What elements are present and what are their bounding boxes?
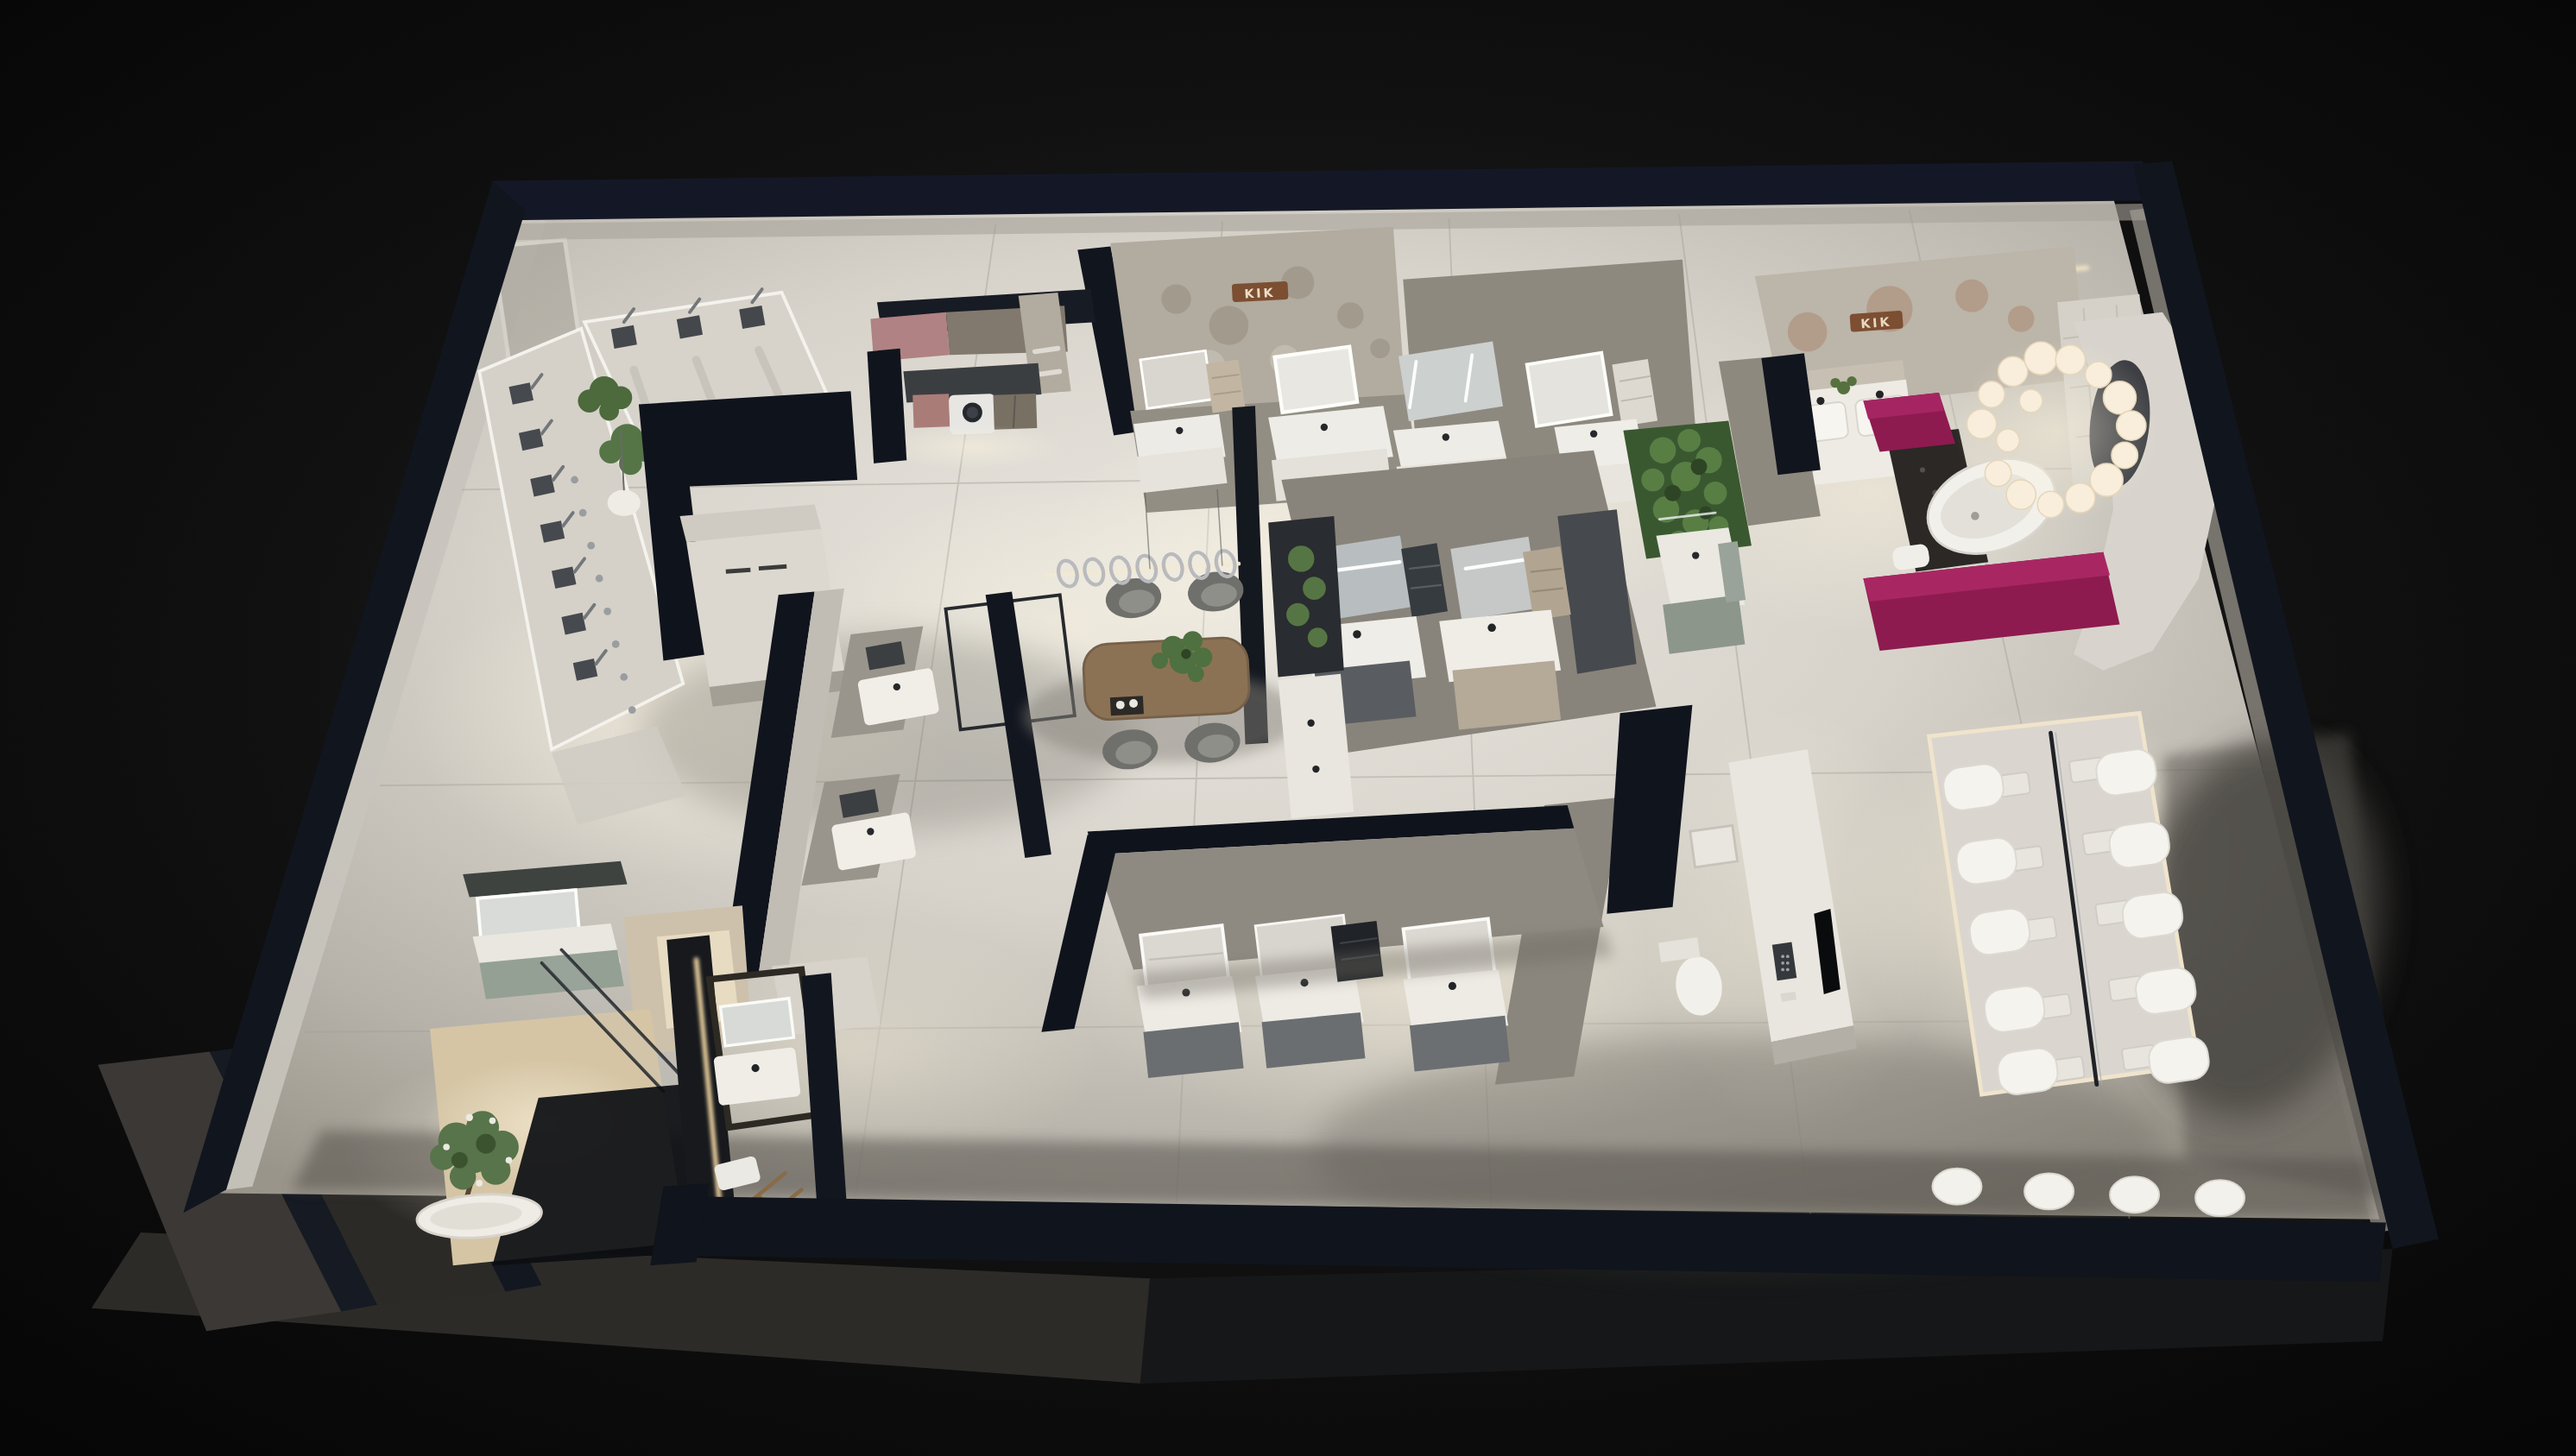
laundry-floor-glow: [882, 424, 1063, 470]
wall-cap-laundry-left: [868, 349, 907, 463]
island-mirror-right: [1450, 537, 1539, 621]
bay1-mirror: [1140, 350, 1212, 408]
sage-vanity-cabinet: [1663, 595, 1745, 654]
bay2-mirror-led: [1274, 347, 1357, 413]
bathtub-drain: [1971, 512, 1979, 520]
table-plant-shade: [1181, 649, 1190, 659]
island-cabinet-right: [1452, 660, 1561, 729]
island-faucet-left: [1353, 630, 1361, 639]
bay4-mirror-led: [1527, 353, 1612, 426]
south-bay2-cabinet: [1262, 1012, 1366, 1068]
pendant-lamp-shade: [608, 489, 641, 515]
bay4-faucet: [1590, 430, 1597, 437]
sage-vanity-faucet: [1692, 552, 1699, 558]
bay1-faucet: [1176, 427, 1183, 434]
bay3-faucet: [1443, 433, 1449, 440]
kik-sign-text-2: KIK: [1860, 315, 1892, 331]
framed-vanity-basin: [713, 1047, 800, 1106]
bay2-faucet: [1321, 424, 1328, 431]
island-faucet-right: [1487, 624, 1496, 633]
floorplan-svg: KIKKIK: [0, 0, 2576, 1456]
showroom-3d-render: KIKKIK: [0, 0, 2576, 1456]
framed-vanity-faucet: [752, 1064, 760, 1072]
white-basin-unit: [1279, 674, 1354, 819]
framed-vanity-mirror: [721, 999, 794, 1046]
south-bay3-cabinet: [1410, 1016, 1510, 1072]
south-bay1-cabinet: [1143, 1022, 1243, 1078]
bay1-shelf-unit: [1206, 360, 1246, 413]
laundry-rose-door: [912, 394, 950, 428]
washing-machine-drum: [967, 407, 978, 418]
west-vanity-faucet-2: [867, 828, 874, 835]
kik-sign-text-1: KIK: [1244, 286, 1276, 301]
west-vanity-faucet-1: [893, 684, 900, 690]
shower-tray-display: [1690, 825, 1738, 867]
table-tray: [1110, 696, 1144, 715]
south-bay3-faucet: [1449, 982, 1456, 990]
plant-rack-shelf: [1268, 516, 1344, 678]
